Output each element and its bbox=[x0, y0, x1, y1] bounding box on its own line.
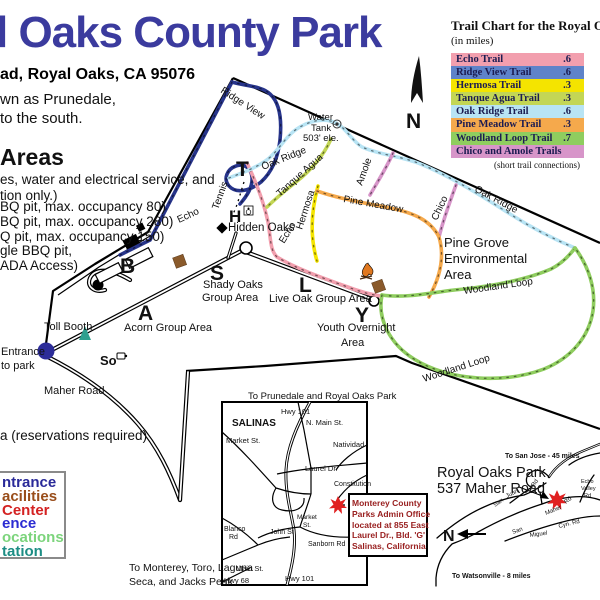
blanco-rd-label-1: Blanco bbox=[224, 526, 246, 533]
trail-miles: .6 bbox=[563, 105, 571, 118]
prunedale-heading: To Prunedale and Royal Oaks Park bbox=[248, 391, 397, 402]
echo-valley-label-2: Valley bbox=[581, 486, 596, 492]
youth-overnight-label-2: Area bbox=[341, 337, 365, 349]
campfire-icon bbox=[360, 263, 373, 279]
shady-oaks-label-1: Shady Oaks bbox=[203, 279, 263, 291]
trail-miles: .6 bbox=[563, 53, 571, 66]
trail-chart-footnote: (short trail connections) bbox=[451, 160, 584, 170]
trail-chart-title: Trail Chart for the Royal Oak bbox=[451, 18, 600, 34]
park-address: ad, Royal Oaks, CA 95076 bbox=[0, 66, 195, 84]
trail-name: Woodland Loop Trail bbox=[451, 133, 552, 144]
trail-name: Tanque Agua Trail bbox=[451, 93, 540, 104]
to-san-jose-label: To San Jose - 45 miles bbox=[505, 453, 580, 460]
areas-item: Q pit, max. occupancy 150) bbox=[0, 230, 173, 245]
admin-line: Monterey County bbox=[352, 498, 424, 509]
trail-name: Chico and Amole Trails bbox=[451, 146, 562, 157]
right-inset-labels: To San Jose - 45 miles Royal Oaks Park 5… bbox=[437, 453, 596, 580]
trail-chart-row: Echo Trail.6 bbox=[451, 53, 584, 66]
trail-chart-row: Ridge View Trail.6 bbox=[451, 66, 584, 79]
market-st-label: Market St. bbox=[226, 436, 260, 445]
area-letter-so: So bbox=[100, 353, 117, 368]
trail-name: Pine Meadow Trail bbox=[451, 119, 541, 130]
trail-name: Ridge View Trail bbox=[451, 67, 531, 78]
hidden-oaks-marker-icon bbox=[216, 222, 227, 233]
echo-valley-label-3: Rd bbox=[584, 493, 591, 499]
right-inset-n-label: N bbox=[443, 528, 455, 545]
laurel-dr-label: Laurel Dr. bbox=[305, 464, 338, 473]
trail-name: Echo Trail bbox=[451, 54, 503, 65]
constitution-label: Constitution bbox=[334, 481, 371, 488]
pine-meadow-trail-label: Pine Meadow bbox=[342, 194, 404, 215]
restroom-icon bbox=[372, 279, 386, 293]
trail-miles: .6 bbox=[563, 66, 571, 79]
water-tank-label-3: 503' ele. bbox=[303, 133, 339, 144]
trail-chart-row: Tanque Agua Trail.3 bbox=[451, 92, 584, 105]
hwy101-bottom-label: Hwy 101 bbox=[285, 574, 314, 583]
blanco-rd-label-2: Rd bbox=[229, 534, 238, 541]
john-st-label: John St bbox=[270, 529, 294, 536]
to-watsonville-label: To Watsonville - 8 miles bbox=[452, 573, 531, 580]
legend-item-station: tation bbox=[2, 545, 64, 559]
admin-line: located at 855 East bbox=[352, 520, 424, 531]
salinas-label: SALINAS bbox=[232, 418, 276, 429]
intro-text: wn as Prunedale, to the south. bbox=[0, 90, 116, 128]
areas-item: gle BBQ pit, bbox=[0, 244, 173, 259]
admin-line: Laurel Dr., Bld. 'G' bbox=[352, 530, 424, 541]
so-area-icon bbox=[117, 353, 127, 359]
hwy101-top-label: Hwy 101 bbox=[281, 407, 310, 416]
areas-intro-line-1: es, water and electrical service, and bbox=[0, 172, 215, 188]
entrance-label-1: Entrance bbox=[1, 346, 45, 358]
market-mid-label-1: Market bbox=[297, 514, 317, 521]
areas-item: BQ pit, max. occupancy 80) bbox=[0, 200, 173, 215]
trail-chart-row: Woodland Loop Trail.7 bbox=[451, 132, 584, 145]
toll-booth-label: Toll Booth bbox=[44, 321, 92, 333]
trail-chart-subtitle: (in miles) bbox=[451, 35, 600, 47]
to-monterey-note: To Monterey, Toro, Laguna Seca, and Jack… bbox=[129, 562, 253, 589]
admin-office-box: Monterey County Parks Admin Office locat… bbox=[348, 493, 428, 557]
acorn-group-area-label: Acorn Group Area bbox=[124, 322, 213, 334]
natividad-label: Natividad bbox=[333, 440, 364, 449]
to-monterey-line-1: To Monterey, Toro, Laguna bbox=[129, 562, 253, 576]
oak-ridge-trail-label-b: Oak Ridge bbox=[473, 184, 520, 216]
trail-chart: Trail Chart for the Royal Oak (in miles)… bbox=[451, 18, 600, 170]
entrance-label-2: to park bbox=[1, 360, 35, 372]
maher-road-east-fill bbox=[180, 372, 188, 500]
areas-item: BQ pit, max. occupancy 280) bbox=[0, 215, 173, 230]
pine-grove-label-1: Pine Grove bbox=[444, 235, 509, 250]
maher-road-addr-label: 537 Maher Road bbox=[437, 481, 545, 497]
intro-line-1: wn as Prunedale, bbox=[0, 90, 116, 109]
trail-chart-row: Oak Ridge Trail.6 bbox=[451, 105, 584, 118]
shady-oaks-label-2: Group Area bbox=[202, 292, 259, 304]
amole-trail-label: Amole bbox=[354, 156, 374, 187]
pine-grove-label-3: Area bbox=[444, 267, 472, 282]
market-mid-label-2: St. bbox=[303, 522, 311, 529]
areas-heading: Areas bbox=[0, 144, 64, 171]
trail-miles: .3 bbox=[563, 92, 571, 105]
admin-line: Parks Admin Office bbox=[352, 509, 424, 520]
admin-line: Salinas, California bbox=[352, 541, 424, 552]
live-oak-group-area-label: Live Oak Group Area bbox=[269, 293, 373, 305]
royal-oaks-park-label: Royal Oaks Park bbox=[437, 465, 547, 481]
maher-road-label: Maher Road bbox=[44, 385, 105, 397]
youth-overnight-label-1: Youth Overnight bbox=[317, 322, 395, 334]
pine-grove-label-2: Environmental bbox=[444, 251, 527, 266]
n-main-label: N. Main St. bbox=[306, 418, 343, 427]
trail-chart-row: Hermosa Trail.3 bbox=[451, 79, 584, 92]
trail-name: Oak Ridge Trail bbox=[451, 106, 529, 117]
sanborn-rd-label: Sanborn Rd bbox=[308, 541, 345, 548]
wheelchair-access-icon bbox=[244, 206, 253, 215]
map-legend: ntrance acilities Center ence ocations t… bbox=[0, 471, 66, 559]
restroom-icon bbox=[173, 254, 187, 268]
areas-list: BQ pit, max. occupancy 80) BQ pit, max. … bbox=[0, 200, 173, 274]
trail-chart-row: Pine Meadow Trail.3 bbox=[451, 118, 584, 131]
echo-valley-label-1: Echo bbox=[581, 479, 594, 485]
compass-n-label: N bbox=[406, 110, 421, 133]
page-title: l Oaks County Park bbox=[0, 8, 381, 58]
echo-trail-label-a: Echo bbox=[176, 206, 202, 226]
cyn-rd-label: Cyn. Rd bbox=[558, 519, 580, 530]
north-compass-icon bbox=[411, 56, 423, 103]
trail-miles: .3 bbox=[563, 79, 571, 92]
trail-miles: .3 bbox=[563, 118, 571, 131]
to-monterey-line-2: Seca, and Jacks Peak bbox=[129, 576, 253, 590]
water-tank-label-1: Water bbox=[308, 112, 333, 123]
reservation-note: a (reservations required) bbox=[0, 428, 147, 443]
areas-item: ADA Access) bbox=[0, 259, 173, 274]
maher-rd-label-1: Maher bbox=[545, 505, 563, 517]
trail-name: Hermosa Trail bbox=[451, 80, 521, 91]
intro-line-2: to the south. bbox=[0, 109, 116, 128]
trail-miles: .7 bbox=[563, 132, 571, 145]
road-turnaround-loop bbox=[240, 242, 252, 254]
trail-chart-row: Chico and Amole Trails bbox=[451, 145, 584, 158]
area-letter-t: T bbox=[236, 158, 249, 181]
woodland-loop-label-a: Woodland Loop bbox=[463, 276, 534, 297]
san-miguel-label-2: Miguel bbox=[529, 531, 547, 539]
